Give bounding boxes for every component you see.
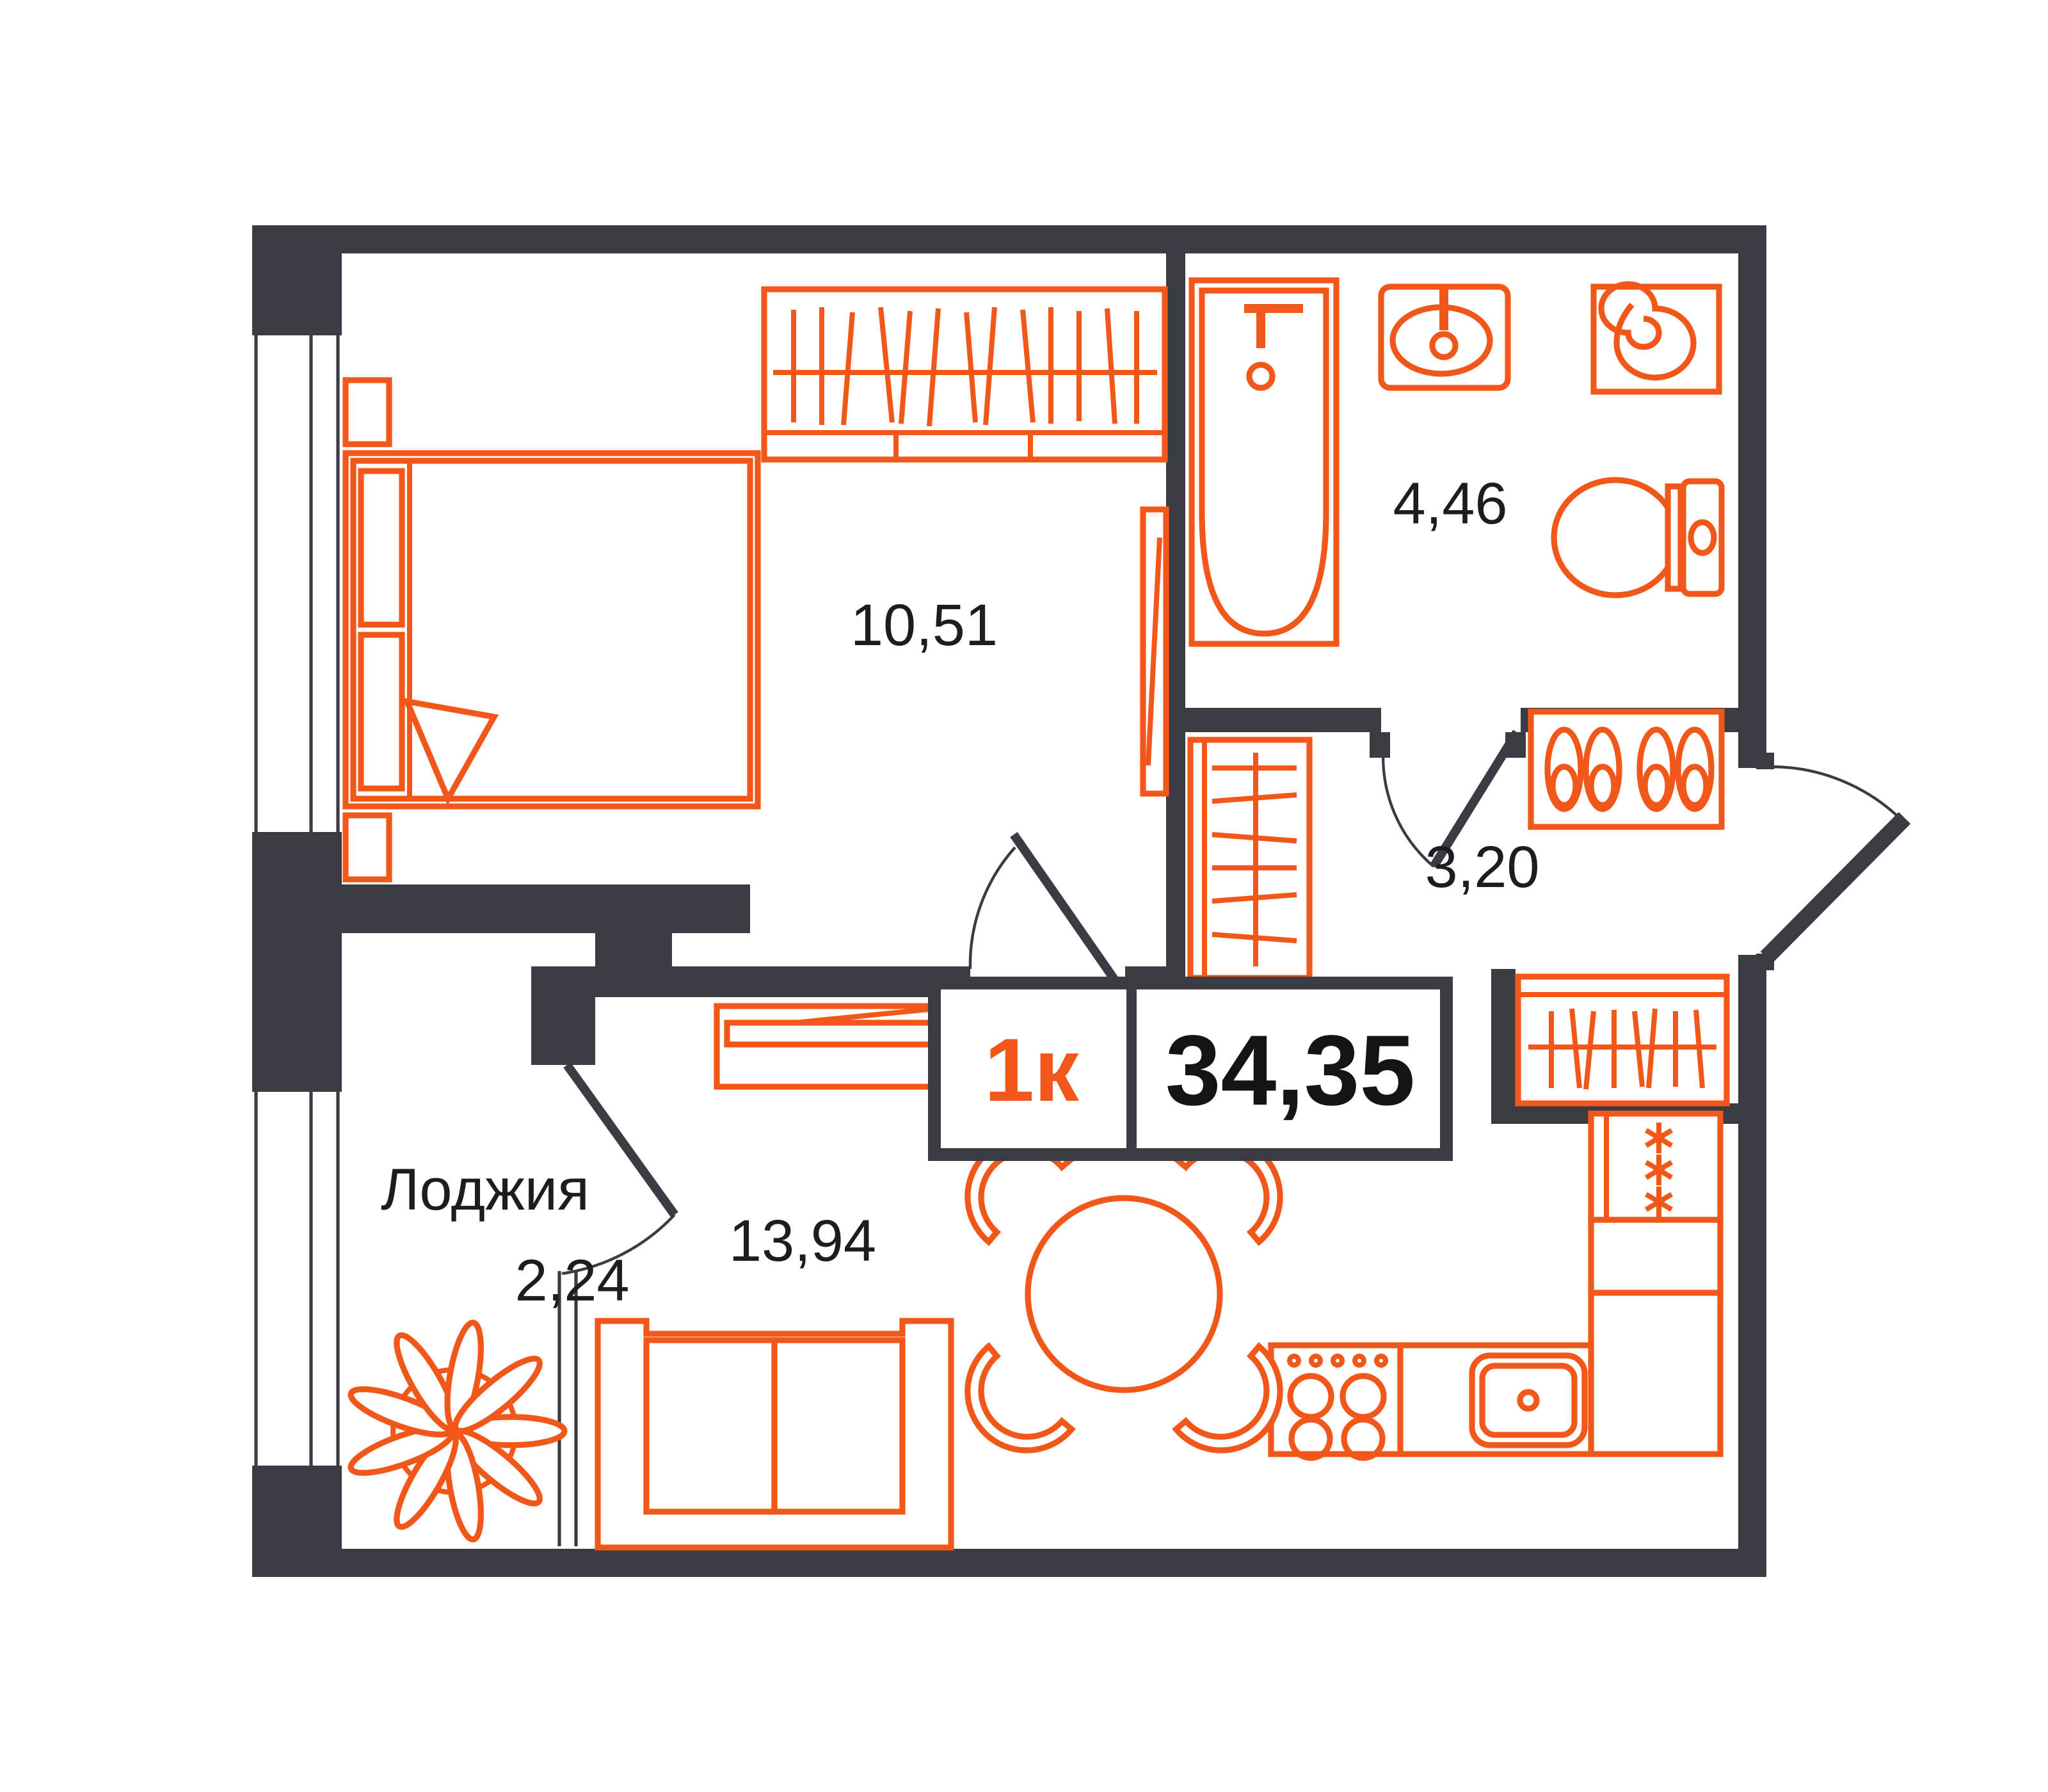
entrance-door-arc bbox=[1772, 767, 1902, 820]
bedroom-door bbox=[970, 835, 1119, 986]
wall-bedroom-bottom-band1 bbox=[342, 884, 750, 933]
toilet-tank-strip bbox=[1668, 486, 1681, 589]
entrance-door bbox=[1766, 767, 1905, 957]
bedroom-door-arc bbox=[970, 847, 1015, 969]
bedroom-furniture bbox=[346, 289, 1166, 879]
corridor-closet-icon bbox=[1190, 740, 1309, 978]
living-area-label: 13,94 bbox=[729, 1208, 876, 1274]
tv-screen bbox=[727, 1023, 954, 1044]
bed-pillow-2 bbox=[361, 635, 402, 788]
badge-rooms-label: 1к bbox=[984, 1020, 1080, 1120]
wall-bathroom-bottom-left bbox=[1185, 708, 1381, 732]
bed-pillow-1 bbox=[361, 471, 402, 625]
kitchen-furniture bbox=[1271, 1114, 1720, 1458]
floor-plan: 10,51 4,46 3,20 13,94 Лоджия 2,24 1к 34,… bbox=[0, 0, 2048, 1792]
bedroom-wardrobe-icon bbox=[764, 289, 1165, 460]
wall-top bbox=[252, 225, 1766, 253]
tv-stand-icon bbox=[717, 1006, 964, 1087]
nightstand-icon-top bbox=[346, 380, 389, 444]
washing-machine-icon bbox=[1594, 284, 1719, 392]
dining-set bbox=[968, 1138, 1280, 1450]
wall-bedroom-bottom-band2 bbox=[531, 966, 970, 997]
bathtub-icon bbox=[1192, 280, 1336, 644]
bed-icon bbox=[346, 453, 758, 806]
dining-table-icon bbox=[1028, 1198, 1220, 1390]
wall-left-corner-bottom bbox=[252, 1466, 342, 1577]
plant-leaves bbox=[346, 1320, 564, 1542]
wall-right-upper bbox=[1738, 253, 1766, 768]
badge-area-value: 34,35 bbox=[1165, 1015, 1415, 1126]
sofa-icon bbox=[598, 1321, 951, 1548]
shoe-cabinet-icon bbox=[1531, 712, 1722, 827]
bedroom-door-leaf bbox=[1014, 835, 1119, 986]
bedroom-window bbox=[256, 335, 338, 832]
toilet-icon bbox=[1554, 480, 1722, 595]
mirror-icon bbox=[1143, 509, 1166, 794]
apartment-badge: 1к 34,35 bbox=[934, 983, 1446, 1155]
wall-left-corner-top bbox=[252, 225, 342, 335]
jamb-entrance-top bbox=[1756, 753, 1774, 769]
floor-plan-page: 10,51 4,46 3,20 13,94 Лоджия 2,24 1к 34,… bbox=[0, 0, 2048, 1792]
wall-left-pier bbox=[252, 832, 342, 1092]
loggia-name-label: Лоджия bbox=[381, 1157, 589, 1222]
loggia-area-label: 2,24 bbox=[515, 1248, 629, 1313]
entrance-door-leaf bbox=[1766, 818, 1905, 957]
bathroom-fixtures bbox=[1192, 280, 1722, 644]
kitchen-sink-icon bbox=[1400, 1345, 1591, 1454]
toilet-bowl bbox=[1554, 480, 1677, 595]
kitchen-counter-right-2 bbox=[1591, 1293, 1720, 1454]
fridge-icon bbox=[1591, 1114, 1720, 1220]
bathroom-area-label: 4,46 bbox=[1393, 471, 1507, 536]
bathroom-sink-icon bbox=[1381, 287, 1508, 388]
wall-right-lower bbox=[1738, 955, 1766, 1549]
loggia-window bbox=[256, 1092, 338, 1466]
kitchen-counter-right-1 bbox=[1591, 1220, 1720, 1293]
sink-tap bbox=[1432, 334, 1455, 357]
jamb-bathroom-left bbox=[1370, 732, 1390, 758]
wall-bottom bbox=[252, 1549, 1766, 1577]
plant-icon bbox=[346, 1320, 564, 1542]
hallway-area-label: 3,20 bbox=[1425, 835, 1539, 900]
loggia-furniture bbox=[346, 1320, 564, 1542]
stove-icon bbox=[1271, 1345, 1400, 1458]
hall-closet-icon bbox=[1518, 977, 1727, 1103]
nightstand-icon-bottom bbox=[346, 815, 389, 879]
wall-nook-left bbox=[1491, 969, 1516, 1124]
wall-loggia-partition bbox=[531, 973, 595, 1065]
bedroom-area-label: 10,51 bbox=[851, 593, 998, 658]
